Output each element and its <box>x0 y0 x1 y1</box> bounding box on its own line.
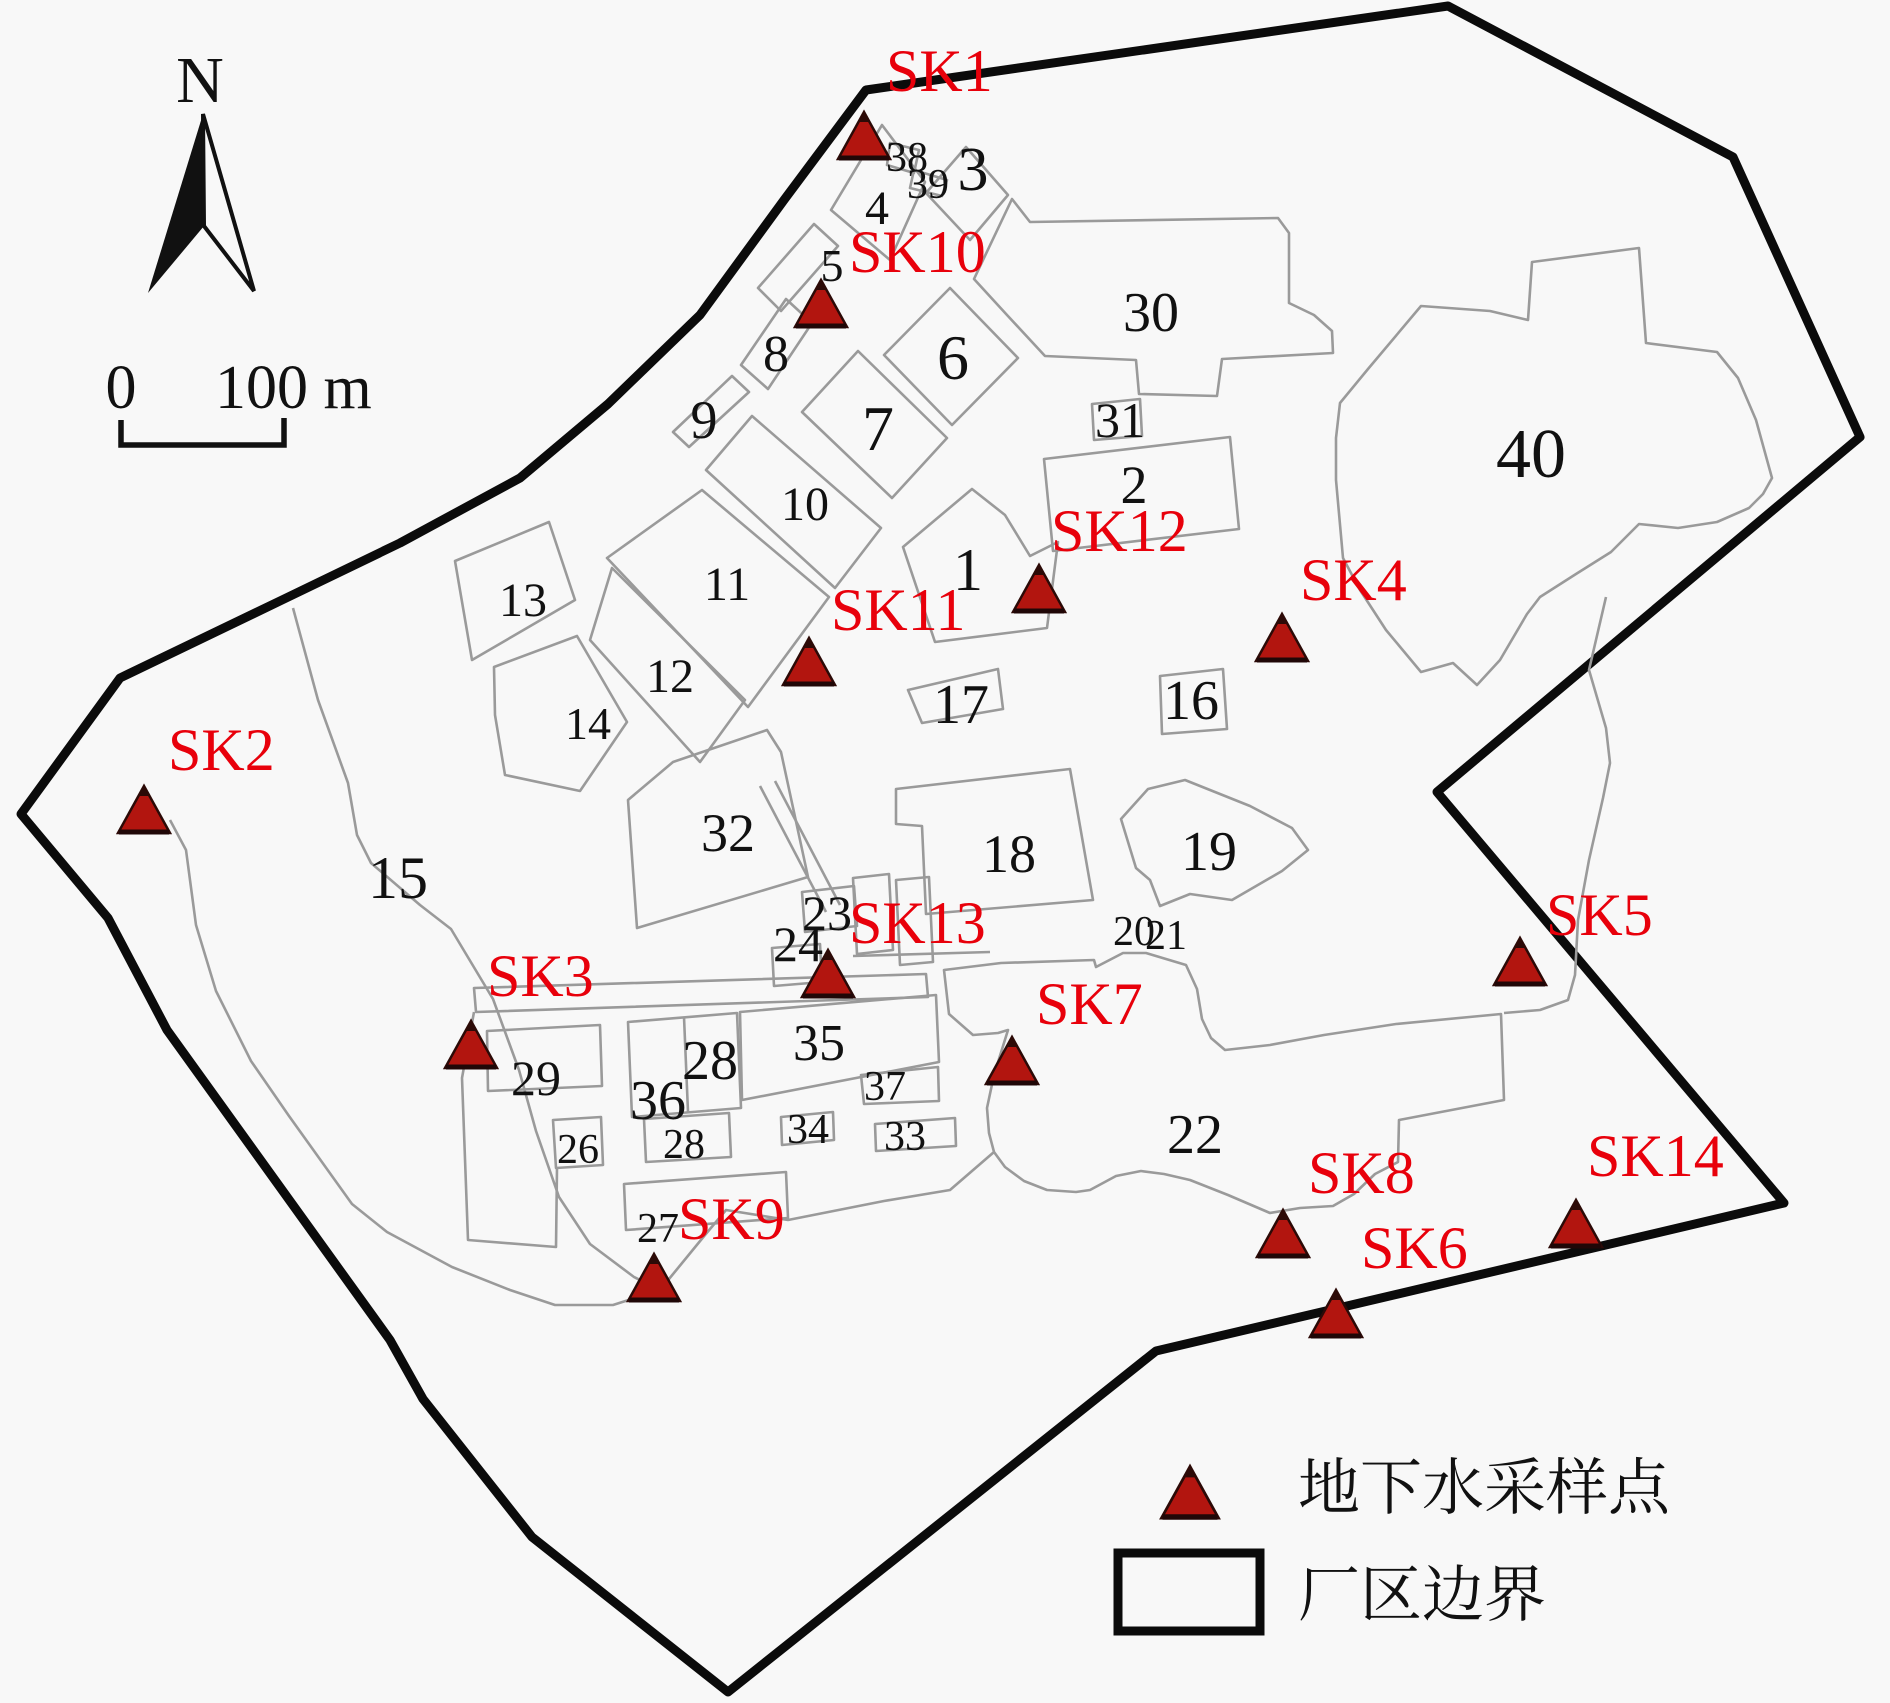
svg-text:3: 3 <box>958 136 989 204</box>
svg-text:SK11: SK11 <box>831 577 965 643</box>
svg-text:SK9: SK9 <box>678 1186 785 1252</box>
svg-text:16: 16 <box>1163 670 1219 732</box>
svg-text:SK7: SK7 <box>1036 971 1143 1037</box>
svg-text:19: 19 <box>1181 821 1237 883</box>
svg-text:22: 22 <box>1167 1104 1223 1166</box>
svg-text:SK2: SK2 <box>168 717 275 783</box>
svg-text:39: 39 <box>907 162 949 208</box>
svg-text:36: 36 <box>630 1070 686 1132</box>
svg-text:SK8: SK8 <box>1308 1140 1415 1206</box>
svg-text:28: 28 <box>682 1030 738 1092</box>
svg-text:35: 35 <box>793 1015 845 1072</box>
svg-text:SK14: SK14 <box>1587 1123 1724 1189</box>
svg-text:17: 17 <box>933 674 989 736</box>
svg-text:29: 29 <box>511 1050 561 1106</box>
svg-text:12: 12 <box>646 650 694 703</box>
svg-text:26: 26 <box>557 1127 599 1173</box>
svg-text:0: 0 <box>106 354 137 422</box>
svg-text:SK12: SK12 <box>1051 498 1188 564</box>
svg-text:SK1: SK1 <box>886 38 993 104</box>
svg-text:SK6: SK6 <box>1361 1215 1468 1281</box>
svg-text:30: 30 <box>1123 282 1179 344</box>
svg-text:24: 24 <box>773 916 823 972</box>
svg-text:6: 6 <box>937 322 969 393</box>
svg-text:21: 21 <box>1145 913 1187 959</box>
svg-text:11: 11 <box>704 558 750 611</box>
svg-text:SK4: SK4 <box>1300 547 1407 613</box>
svg-text:18: 18 <box>982 824 1036 884</box>
svg-text:SK13: SK13 <box>849 890 986 956</box>
svg-text:100 m: 100 m <box>215 354 372 422</box>
svg-text:34: 34 <box>787 1107 829 1153</box>
svg-text:32: 32 <box>701 803 755 863</box>
svg-text:37: 37 <box>864 1064 906 1110</box>
svg-text:10: 10 <box>781 478 829 531</box>
svg-text:33: 33 <box>884 1114 926 1160</box>
svg-text:7: 7 <box>862 393 894 464</box>
svg-text:SK3: SK3 <box>487 943 594 1009</box>
svg-text:SK10: SK10 <box>849 219 986 285</box>
svg-text:13: 13 <box>499 574 547 627</box>
svg-text:15: 15 <box>368 845 428 911</box>
svg-text:14: 14 <box>565 698 611 749</box>
svg-text:27: 27 <box>637 1206 679 1252</box>
svg-text:40: 40 <box>1496 416 1566 493</box>
svg-text:9: 9 <box>691 390 718 450</box>
svg-text:N: N <box>176 44 224 117</box>
svg-text:SK5: SK5 <box>1546 882 1653 948</box>
svg-text:31: 31 <box>1095 392 1145 448</box>
svg-text:8: 8 <box>763 326 789 383</box>
